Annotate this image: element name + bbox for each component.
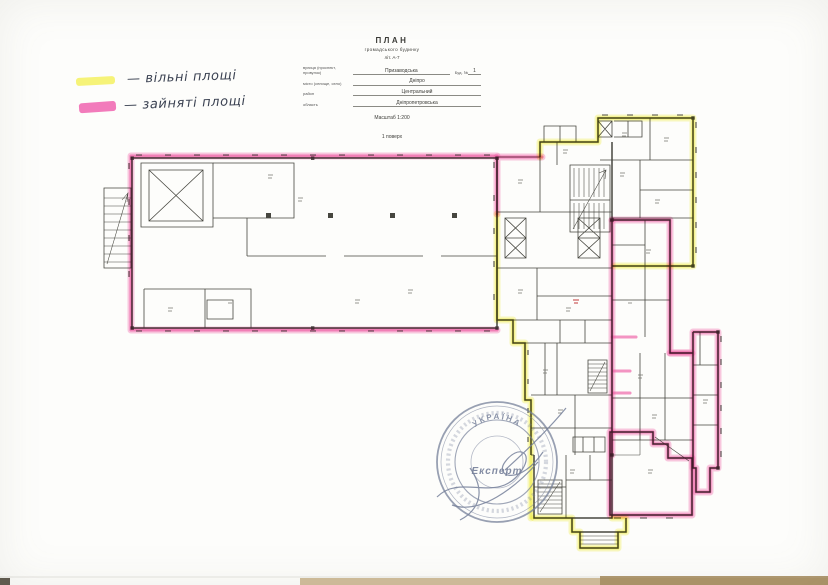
wall-piers	[131, 116, 720, 469]
room-top-left	[213, 163, 294, 256]
elevator-bank-left	[505, 218, 526, 258]
room-bottom-left	[144, 289, 251, 328]
vent-shaft	[598, 121, 642, 137]
mid-right-outline	[612, 220, 693, 353]
room-number-marks	[168, 133, 708, 473]
left-wing-outline	[132, 158, 497, 328]
seal-country-text: УКРАЇНА	[471, 412, 523, 429]
wc-cells	[573, 437, 605, 452]
highlight-occupied	[131, 156, 718, 515]
scan-edge-artifacts	[0, 576, 828, 585]
porch-steps	[580, 536, 618, 544]
top-right-rooms	[600, 118, 693, 218]
floor-plan-drawing: УКРАЇНА Експерт	[0, 0, 828, 585]
hall-columns	[266, 213, 457, 218]
highlight-free	[497, 118, 693, 548]
red-annotation-mark	[573, 300, 579, 303]
main-staircase	[557, 142, 610, 232]
bottom-left-block-outline	[534, 455, 612, 518]
scanned-floor-plan-sheet: { "legend": { "items": [ { "swatch_color…	[0, 0, 828, 585]
elevator-shaft	[149, 170, 203, 221]
window-marks	[129, 115, 721, 518]
